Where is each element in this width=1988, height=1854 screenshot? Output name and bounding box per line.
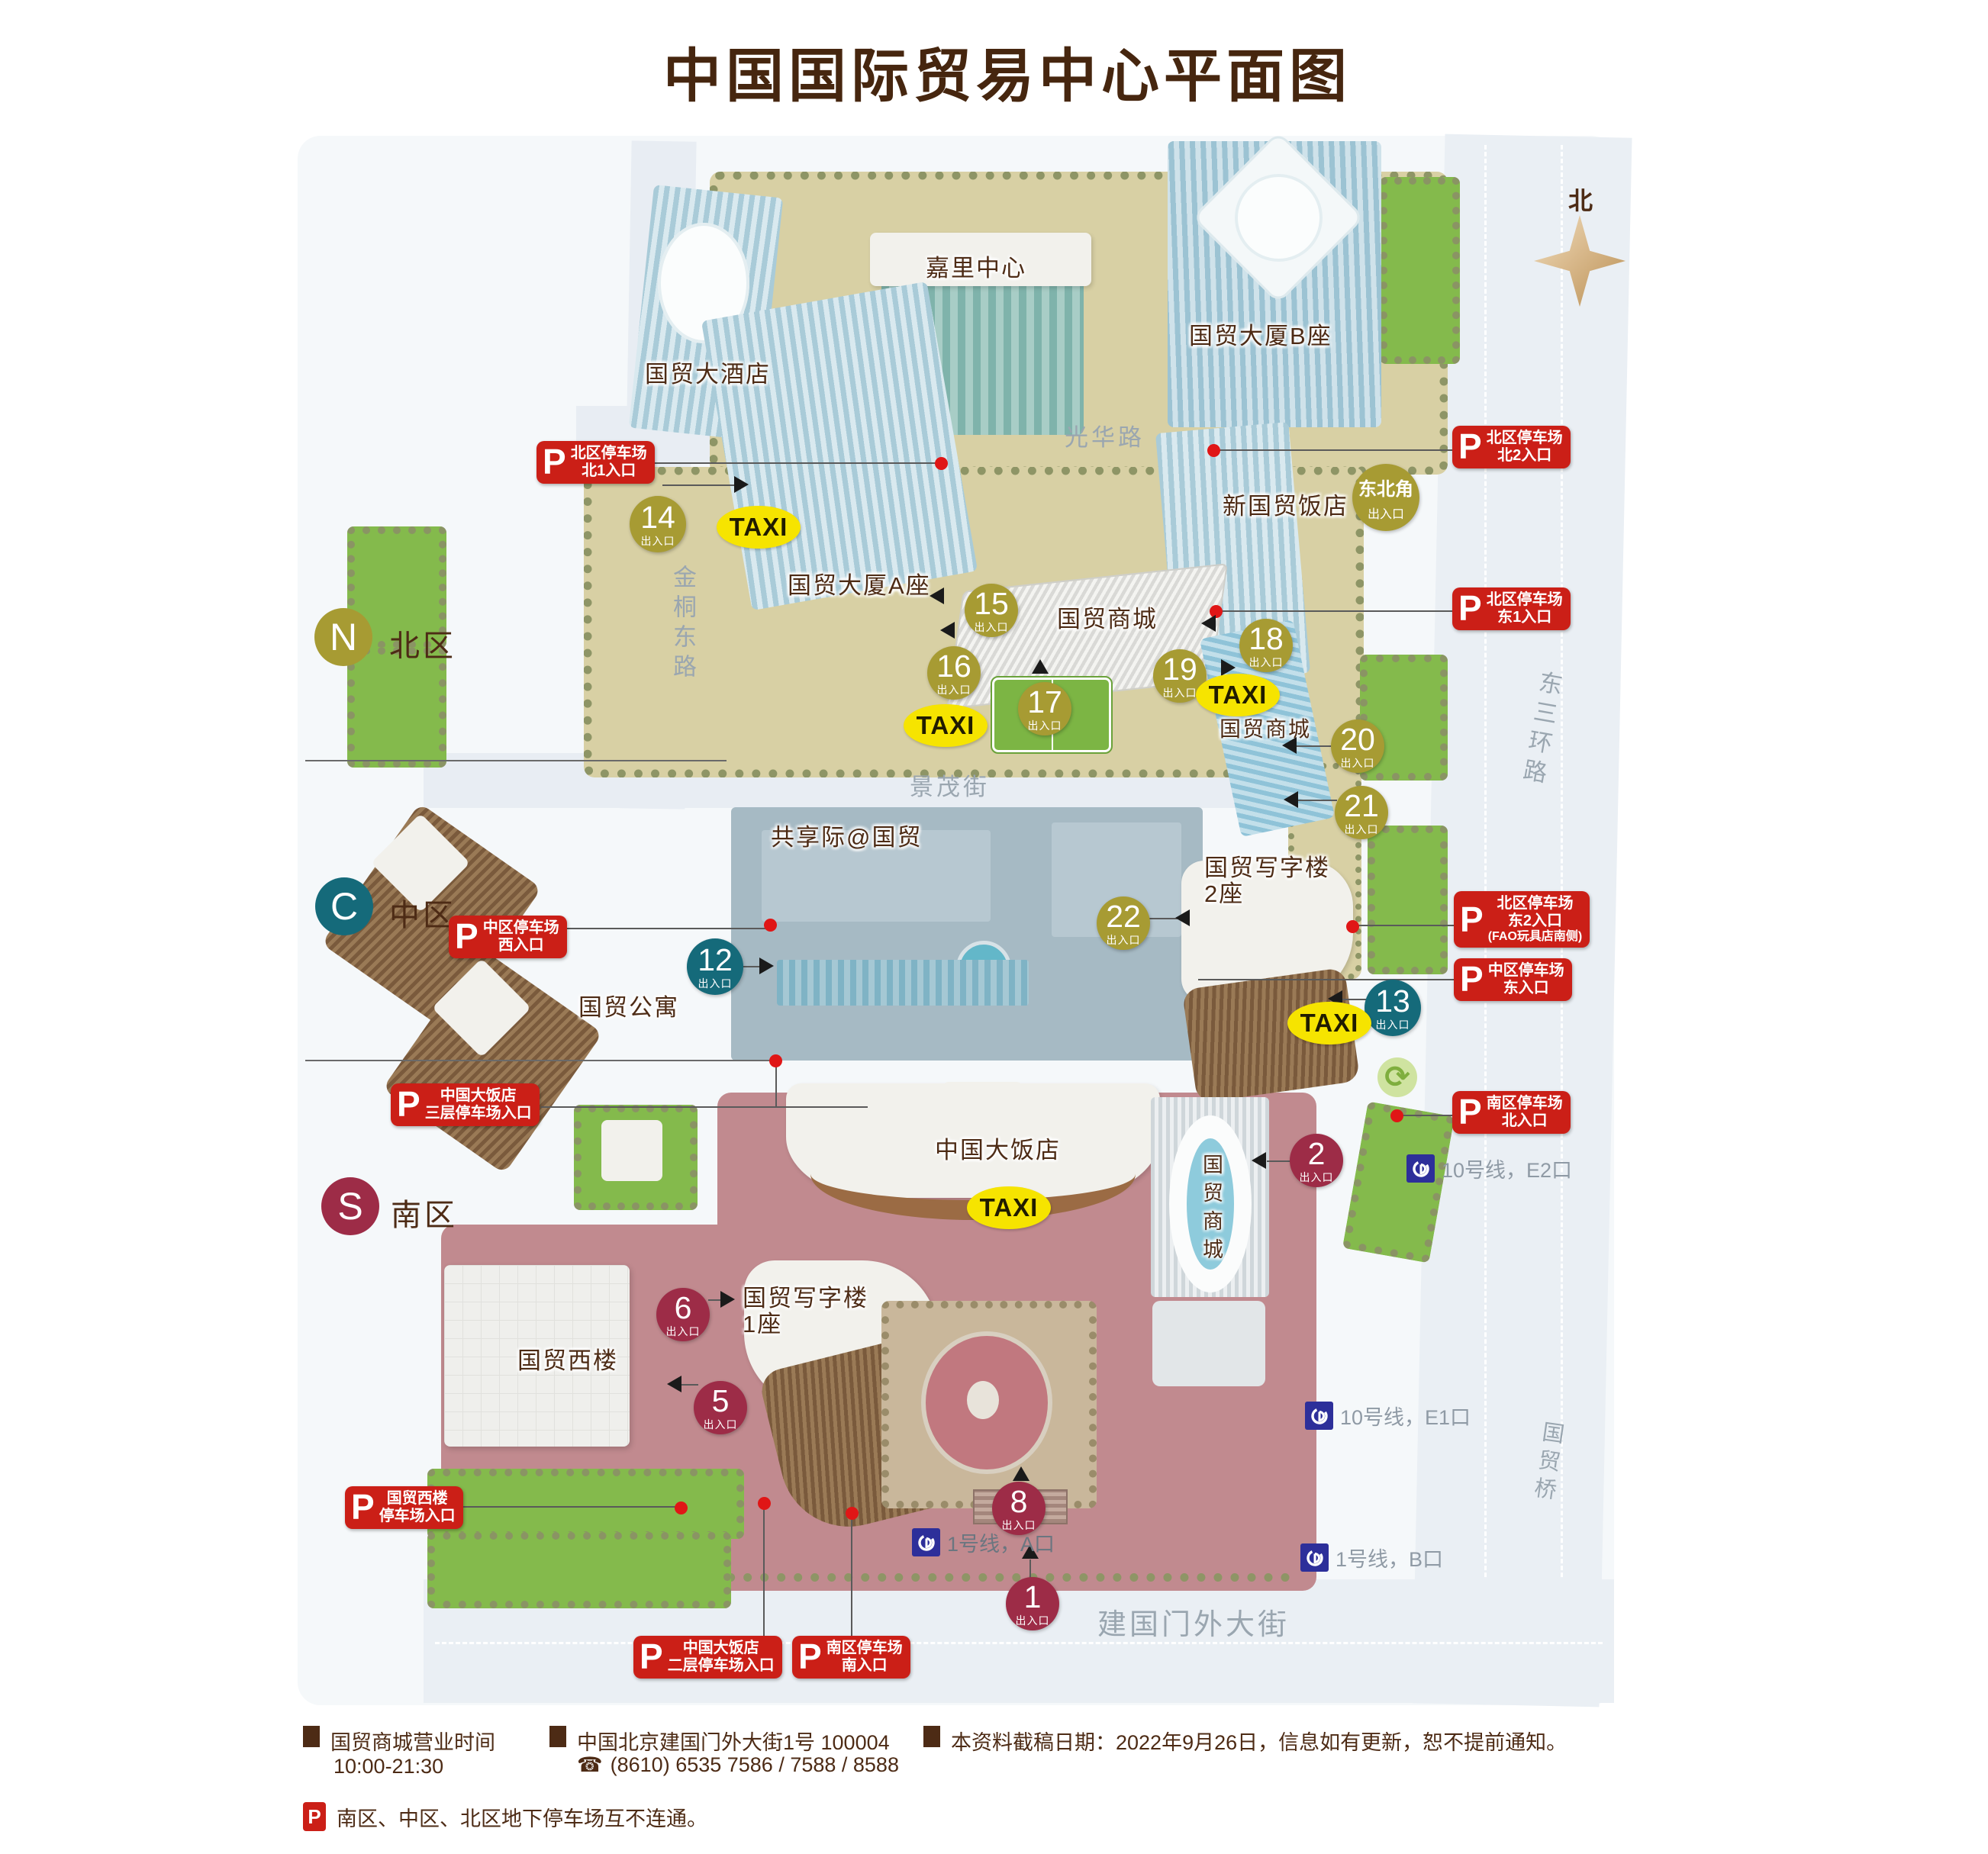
arrow-exit16 — [940, 622, 955, 639]
exit-number: 18 — [1249, 623, 1284, 655]
northeast-corner-entrance: 东北角 出入口 — [1352, 464, 1419, 531]
parking-badge-hotel-l3: P 中国大饭店三层停车场入口 — [391, 1083, 540, 1126]
arrow-line-exit2 — [1267, 1160, 1291, 1162]
divider-north-central — [305, 760, 727, 761]
parking-note-icon: P — [303, 1802, 326, 1831]
footer-address-text: 中国北京建国门外大街1号 100004 — [577, 1726, 890, 1756]
small-pavilion — [601, 1120, 662, 1181]
arrow-line-exit13 — [1342, 999, 1366, 1000]
northeast-corner-line2: 出入口 — [1368, 504, 1404, 522]
parking-icon: P — [455, 922, 478, 951]
exit-number: 2 — [1308, 1138, 1326, 1170]
taxi-label: TAXI — [1209, 681, 1268, 710]
parking-badge-central-east: P 中区停车场东入口 — [1454, 958, 1572, 1001]
badge-line: 中区停车场 — [483, 919, 559, 937]
street-jianguomenwai: 建国门外大街 — [1097, 1601, 1290, 1643]
arrow-exit20 — [1282, 737, 1297, 754]
arrow-line-exit14 — [662, 484, 736, 486]
exit-number: 5 — [712, 1386, 730, 1417]
arrow-exit18 — [1201, 615, 1216, 632]
exit-sub: 出入口 — [1300, 1172, 1334, 1183]
subway-entrance-label: 10号线，E2口 — [1442, 1154, 1572, 1183]
exit-number: 13 — [1375, 986, 1410, 1017]
exit-number: 19 — [1162, 654, 1197, 685]
footer-phone: ☎(8610) 6535 7586 / 7588 / 8588 — [577, 1753, 899, 1777]
subway-entrance-line10-e1: 10号线，E1口 — [1305, 1401, 1471, 1431]
exit-number: 8 — [1010, 1486, 1028, 1518]
parking-badge-south-north: P 南区停车场北入口 — [1452, 1091, 1571, 1134]
arrow-exit6 — [720, 1291, 735, 1308]
connector-hotel-l3-riser — [775, 1064, 777, 1106]
lawn — [427, 1532, 731, 1608]
exit-sub: 出入口 — [666, 1326, 701, 1337]
arrow-exit15 — [930, 587, 944, 604]
exit-sub: 出入口 — [1163, 687, 1197, 698]
connector-north1 — [652, 462, 941, 464]
parking-icon: P — [351, 1492, 375, 1522]
footer-phone-number: (8610) 6535 7586 / 7588 / 8588 — [611, 1753, 899, 1776]
taxi-label: TAXI — [980, 1193, 1039, 1222]
parking-icon: P — [543, 447, 566, 477]
badge-line: 国贸西楼 — [387, 1490, 448, 1508]
parking-location-dot — [1207, 444, 1220, 457]
exit-sub: 出入口 — [704, 1419, 738, 1430]
label-apartments: 国贸公寓 — [578, 988, 679, 1022]
arrow-exit12 — [759, 958, 774, 974]
parking-badge-north2: P 北区停车场北2入口 — [1452, 426, 1571, 468]
taxi-label: TAXI — [730, 513, 788, 542]
subway-logo-icon — [1305, 1402, 1333, 1430]
zone-label-south: 南区 — [391, 1190, 458, 1234]
parking-badge-west-wing: P 国贸西楼停车场入口 — [345, 1486, 463, 1529]
exit-20-marker: 20出入口 — [1331, 719, 1384, 773]
label-west-wing: 国贸西楼 — [517, 1341, 618, 1376]
subway-logo-icon — [1300, 1543, 1329, 1572]
arrow-line-exit12 — [740, 966, 762, 967]
label-office2-line2: 2座 — [1204, 874, 1244, 909]
bullet-icon — [549, 1726, 566, 1747]
glass-atrium — [777, 960, 1029, 1006]
footer-hours: 国贸商城营业时间 — [303, 1726, 495, 1756]
arrow-line-exit5 — [681, 1384, 698, 1386]
exit-2-marker: 2出入口 — [1290, 1134, 1343, 1187]
badge-line: 停车场入口 — [379, 1508, 456, 1525]
connector-east1 — [1220, 610, 1455, 612]
zone-marker-south: S — [321, 1177, 379, 1235]
badge-line: 中国大饭店 — [440, 1087, 517, 1105]
exit-18-marker: 18出入口 — [1239, 619, 1293, 672]
exit-5-marker: 5出入口 — [694, 1381, 747, 1434]
badge-line: 北区停车场 — [1487, 591, 1563, 609]
arrow-line-exit1 — [1029, 1559, 1031, 1578]
badge-line: 南区停车场 — [1487, 1095, 1563, 1112]
exit-21-marker: 21出入口 — [1335, 786, 1388, 839]
badge-line: 北区停车场 — [1497, 895, 1573, 913]
zone-marker-north: N — [314, 608, 372, 666]
cwt-tower-b-crown-circle — [1235, 174, 1323, 262]
badge-line: 中区停车场 — [1488, 962, 1564, 980]
lawn — [1368, 826, 1448, 974]
subway-entrance-label: 1号线，B口 — [1336, 1543, 1443, 1572]
parking-location-dot — [675, 1502, 688, 1514]
connector-central-west — [562, 928, 768, 929]
zone-letter-north: N — [330, 615, 357, 659]
exit-16-marker: 16出入口 — [927, 646, 981, 700]
arrow-line-exit20 — [1296, 745, 1332, 747]
china-world-hotel-porch — [942, 1082, 1023, 1129]
footer-hours-title: 国贸商城营业时间 — [330, 1726, 495, 1756]
parking-location-dot — [935, 457, 948, 470]
divider-central-south — [305, 1060, 772, 1061]
arrow-exit21 — [1284, 791, 1298, 808]
zone-label-central: 中区 — [389, 890, 456, 935]
subway-logo-icon — [912, 1528, 940, 1556]
exit-sub: 出入口 — [1016, 1615, 1050, 1626]
label-mall-north: 国贸商城 — [1057, 600, 1158, 634]
badge-line: 北1入口 — [582, 462, 636, 480]
parking-badge-south-south: P 南区停车场南入口 — [792, 1636, 910, 1679]
parking-icon: P — [1458, 432, 1482, 462]
arrow-exit8 — [1013, 1466, 1029, 1481]
subway-entrance-label: 10号线，E1口 — [1340, 1401, 1471, 1431]
exit-1-marker: 1出入口 — [1006, 1577, 1059, 1630]
exit-number: 15 — [974, 588, 1009, 620]
badge-line: (FAO玩具店南侧) — [1488, 930, 1583, 944]
exit-number: 6 — [675, 1292, 692, 1324]
arrow-exit22 — [1175, 909, 1190, 926]
exit-number: 14 — [640, 502, 675, 533]
connector-north2 — [1218, 449, 1455, 451]
exit-number: 17 — [1027, 687, 1062, 718]
footer-notice-text: 本资料截稿日期：2022年9月26日，信息如有更新，恕不提前通知。 — [951, 1726, 1567, 1756]
taxi-stand: TAXI — [904, 704, 988, 747]
subway-entrance-line10-e2: 10号线，E2口 — [1406, 1154, 1572, 1183]
parking-icon: P — [1458, 1097, 1482, 1127]
exit-sub: 出入口 — [975, 622, 1009, 632]
exit-12-marker: 12出入口 — [687, 938, 743, 995]
badge-line: 北区停车场 — [571, 445, 647, 462]
exit-sub: 出入口 — [1376, 1019, 1410, 1030]
south-garden — [881, 1301, 1097, 1508]
badge-line: 东1入口 — [1497, 609, 1551, 626]
parking-badge-east2: P 北区停车场东2入口(FAO玩具店南侧) — [1454, 891, 1590, 948]
label-cwt-tower-a: 国贸大厦A座 — [788, 566, 931, 600]
exit-number: 22 — [1106, 901, 1141, 932]
connector-south-north — [1401, 1115, 1455, 1116]
bullet-icon — [923, 1726, 940, 1747]
connector-hotel-l3 — [541, 1106, 868, 1108]
badge-line: 二层停车场入口 — [668, 1657, 775, 1675]
exit-14-marker: 14出入口 — [630, 496, 686, 552]
taxi-stand: TAXI — [967, 1186, 1051, 1229]
parking-location-dot — [769, 1054, 782, 1067]
exit-sub: 出入口 — [1107, 935, 1141, 945]
parking-badge-central-west: P 中区停车场西入口 — [449, 916, 567, 958]
arrow-line-exit21 — [1297, 800, 1337, 801]
exit-sub: 出入口 — [1345, 824, 1379, 835]
exit-6-marker: 6出入口 — [656, 1288, 710, 1341]
lawn — [1380, 177, 1460, 364]
zone-label-north: 北区 — [389, 621, 456, 665]
parking-badge-east1: P 北区停车场东1入口 — [1452, 587, 1571, 630]
connector-east2 — [1357, 925, 1457, 926]
label-office1-line2: 1座 — [743, 1305, 782, 1339]
parking-icon: P — [1460, 964, 1484, 994]
connector-central-east — [1198, 979, 1457, 980]
badge-line: 西入口 — [498, 937, 544, 954]
arrow-exit5 — [667, 1376, 681, 1392]
parking-location-dot — [764, 919, 777, 932]
arrow-exit14 — [734, 476, 749, 493]
exit-sub: 出入口 — [937, 684, 971, 695]
exit-number: 12 — [698, 945, 733, 976]
roundabout-glyph: ⟳ — [1384, 1060, 1410, 1095]
exit-number: 20 — [1340, 724, 1375, 755]
label-mall-east: 国贸商城 — [1220, 713, 1311, 743]
parking-badge-hotel-l2: P 中国大饭店二层停车场入口 — [633, 1636, 782, 1679]
parking-icon: P — [798, 1642, 822, 1672]
parking-badge-north1: P 北区停车场北1入口 — [536, 441, 655, 484]
street-jintongdong: 金桐东路 — [665, 565, 700, 684]
label-kerry-center: 嘉里中心 — [926, 249, 1026, 283]
garden-center — [967, 1381, 999, 1419]
parking-icon: P — [640, 1642, 663, 1672]
parking-location-dot — [1346, 920, 1359, 933]
badge-line: 中国大饭店 — [683, 1640, 759, 1657]
label-traders-hotel: 国贸大酒店 — [645, 355, 771, 389]
label-mall-south: 国贸商城 — [1197, 1154, 1226, 1267]
footer-hours-value: 10:00-21:30 — [333, 1755, 443, 1778]
exit-sub: 出入口 — [641, 536, 675, 546]
badge-line: 北2入口 — [1497, 447, 1551, 465]
page-title: 中国国际贸易中心平面图 — [663, 29, 1352, 113]
phone-icon: ☎ — [577, 1753, 603, 1776]
label-cwt-tower-b: 国贸大厦B座 — [1189, 317, 1332, 351]
exit-number: 16 — [936, 651, 971, 682]
connector-south-south — [851, 1517, 852, 1637]
badge-line: 南区停车场 — [826, 1640, 903, 1657]
northeast-corner-line1: 东北角 — [1358, 474, 1413, 501]
bullet-icon — [303, 1726, 320, 1747]
footer-parking-note-text: 南区、中区、北区地下停车场互不连通。 — [337, 1802, 707, 1832]
connector-hotel-l2 — [763, 1506, 765, 1637]
parking-icon: P — [397, 1090, 420, 1119]
mall-south-lower — [1152, 1301, 1265, 1386]
zone-marker-central: C — [315, 877, 373, 935]
exit-13-marker: 13出入口 — [1365, 980, 1421, 1036]
subway-entrance-label: 1号线，A口 — [947, 1527, 1055, 1557]
arrow-line-exit22 — [1149, 918, 1178, 919]
taxi-stand: TAXI — [1196, 674, 1280, 716]
lawn — [427, 1469, 744, 1539]
parking-location-dot — [1390, 1109, 1403, 1122]
exit-17-marker: 17出入口 — [1018, 682, 1071, 735]
exit-number: 1 — [1024, 1582, 1042, 1613]
parking-location-dot — [846, 1507, 859, 1520]
exit-sub: 出入口 — [1249, 657, 1284, 668]
subway-entrance-line1-b: 1号线，B口 — [1300, 1543, 1443, 1572]
exit-sub: 出入口 — [1028, 720, 1062, 731]
street-jingmao: 景茂街 — [910, 768, 990, 802]
exit-22-marker: 22出入口 — [1097, 896, 1150, 950]
taxi-label: TAXI — [917, 711, 975, 740]
footer-parking-note: P 南区、中区、北区地下停车场互不连通。 — [303, 1802, 707, 1832]
parking-icon: P — [1460, 905, 1484, 935]
taxi-label: TAXI — [1300, 1009, 1359, 1038]
exit-sub: 出入口 — [1341, 758, 1375, 768]
arrow-exit17 — [1032, 659, 1049, 674]
badge-line: 南入口 — [842, 1657, 888, 1675]
exit-number: 21 — [1344, 790, 1379, 822]
site-map-canvas: 光华路 金桐东路 景茂街 东三环路 建国门外大街 国贸桥 国贸大酒店 嘉里中心 … — [0, 0, 1988, 1854]
zone-letter-south: S — [337, 1184, 362, 1228]
badge-line: 东入口 — [1503, 980, 1549, 997]
road-lane-line — [435, 1642, 1603, 1644]
exit-sub: 出入口 — [698, 978, 733, 989]
subway-logo-icon — [1406, 1154, 1435, 1183]
connector-west-wing — [458, 1506, 679, 1508]
label-china-world-hotel: 中国大饭店 — [935, 1131, 1061, 1165]
compass-north-label: 北 — [1568, 182, 1593, 217]
arrow-exit2 — [1252, 1152, 1266, 1169]
subway-entrance-line1-a: 1号线，A口 — [912, 1527, 1055, 1557]
parking-location-dot — [758, 1497, 771, 1510]
badge-line: 北区停车场 — [1487, 430, 1563, 447]
label-shared-space: 共享际@国贸 — [771, 818, 922, 852]
badge-line: 三层停车场入口 — [425, 1105, 532, 1122]
label-new-cwt-hotel: 新国贸饭店 — [1223, 487, 1348, 521]
taxi-stand: TAXI — [1287, 1002, 1371, 1044]
badge-line: 东2入口 — [1508, 913, 1562, 930]
parking-icon: P — [1458, 594, 1482, 623]
street-guanghua: 光华路 — [1065, 418, 1145, 452]
footer-notice: 本资料截稿日期：2022年9月26日，信息如有更新，恕不提前通知。 — [923, 1726, 1567, 1756]
taxi-stand: TAXI — [717, 506, 801, 549]
zone-letter-central: C — [330, 884, 358, 929]
badge-line: 北入口 — [1502, 1112, 1548, 1130]
exit-15-marker: 15出入口 — [965, 584, 1018, 637]
roundabout-icon: ⟳ — [1377, 1057, 1417, 1097]
footer-address: 中国北京建国门外大街1号 100004 — [549, 1726, 890, 1756]
